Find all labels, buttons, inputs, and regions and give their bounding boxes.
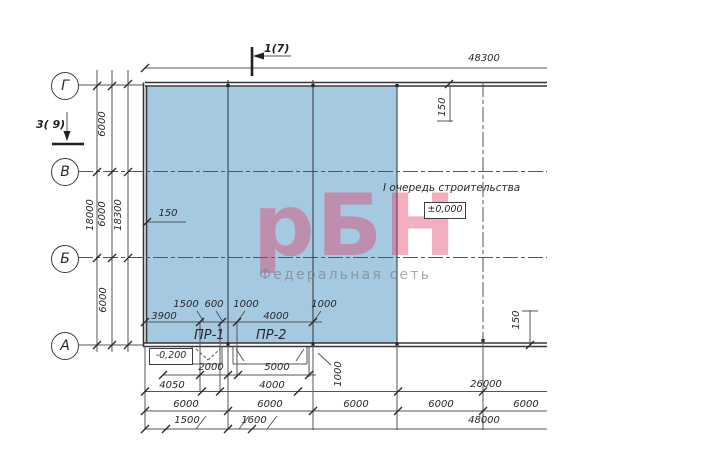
dock-label-pr2: ПР-2 — [256, 328, 287, 343]
floor-plan-sheet: рБН Федеральная сеть Г В Б А 1(7) 3( 9) … — [0, 0, 704, 465]
level-minus-box: -0,200 — [149, 348, 193, 365]
dim-bottom-48000: 48000 — [465, 415, 503, 427]
dim-left-bay-2: 6000 — [97, 194, 109, 234]
dim-opening-4000: 4000 — [260, 311, 292, 323]
dim-opening-1000b: 1000 — [310, 299, 338, 311]
dim-offset-top-right: 150 — [437, 92, 449, 122]
axis-marker-b: Б — [51, 245, 79, 273]
dim-offset-left: 150 — [150, 208, 186, 220]
watermark-tagline: Федеральная сеть — [259, 267, 431, 283]
dim-bottom-1600: 1600 — [239, 415, 269, 427]
dim-offset-bottom-right: 150 — [511, 305, 523, 335]
dim-left-total: 18000 — [85, 195, 97, 235]
section-mark-top: 1(7) — [264, 42, 289, 55]
dim-bottom-1500: 1500 — [172, 415, 202, 427]
dim-opening-3900: 3900 — [149, 311, 179, 323]
dim-bay-6000-5: 6000 — [509, 399, 543, 411]
dim-left-outer: 18300 — [113, 195, 125, 235]
section-mark-left: 3( 9) — [36, 118, 65, 131]
dim-bay-6000-1: 6000 — [169, 399, 203, 411]
dim-opening-600: 600 — [202, 299, 226, 311]
dim-bay-6000-2: 6000 — [253, 399, 287, 411]
level-zero-box: ±0,000 — [424, 202, 466, 219]
axis-marker-v: В — [51, 158, 79, 186]
dim-dock-offset-1000: 1000 — [333, 359, 345, 389]
dim-row3-26000: 26000 — [467, 379, 505, 391]
dim-dock-5000: 5000 — [261, 362, 293, 374]
dim-top-total: 48300 — [454, 53, 514, 65]
dim-row3-4000: 4000 — [256, 380, 288, 392]
dim-opening-1500: 1500 — [172, 299, 200, 311]
dock-label-pr1: ПР-1 — [194, 328, 225, 343]
section-arrow-down-icon — [64, 131, 71, 141]
dim-bay-6000-4: 6000 — [424, 399, 458, 411]
section-arrow-left-icon — [253, 53, 264, 60]
watermark-logo: рБН — [253, 183, 458, 269]
dim-row3-4050: 4050 — [156, 380, 188, 392]
phase-note: I очередь строительства — [383, 182, 520, 194]
dim-left-bay-3: 6000 — [98, 280, 110, 320]
axis-marker-a: А — [51, 332, 79, 360]
dim-bay-6000-3: 6000 — [339, 399, 373, 411]
dim-left-bay-1: 6000 — [97, 104, 109, 144]
dim-opening-1000a: 1000 — [232, 299, 260, 311]
dim-dock-2000: 2000 — [196, 362, 226, 374]
axis-marker-g: Г — [51, 72, 79, 100]
